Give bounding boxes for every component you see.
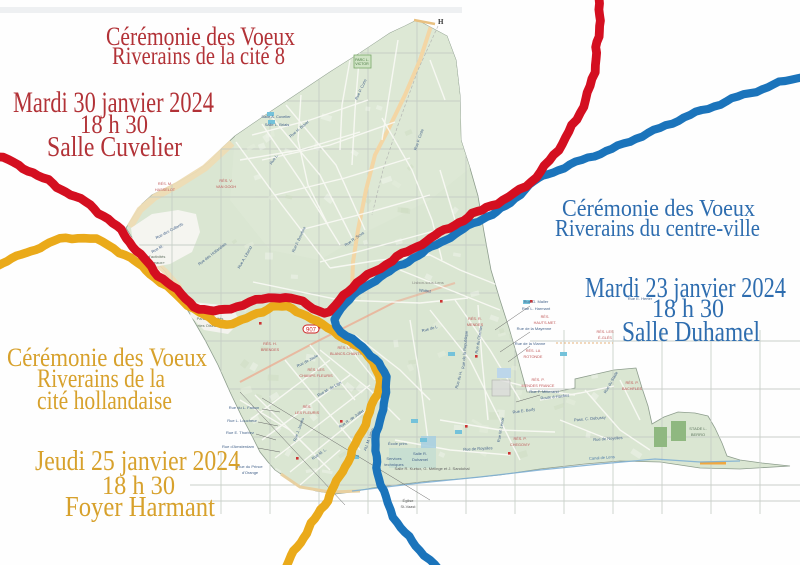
- svg-text:MENDES: MENDES: [467, 323, 484, 327]
- svg-text:MENDES FRANCE: MENDES FRANCE: [522, 384, 555, 388]
- svg-text:HASSELOT: HASSELOT: [155, 188, 176, 192]
- svg-text:d'Orange: d'Orange: [242, 470, 259, 475]
- svg-text:RÉS. P.: RÉS. P.: [513, 436, 526, 441]
- svg-text:Foyer Harmant: Foyer Harmant: [65, 492, 215, 523]
- svg-text:Rue L. Harmant: Rue L. Harmant: [522, 306, 551, 311]
- svg-text:Salle R. Kurtux, G. Mélinge et: Salle R. Kurtux, G. Mélinge et J. Sandoh…: [395, 466, 470, 471]
- svg-text:Salle A. Cuvelier: Salle A. Cuvelier: [261, 114, 291, 119]
- svg-text:RÉS. LES: RÉS. LES: [307, 367, 325, 372]
- svg-text:Salle Cuvelier: Salle Cuvelier: [47, 132, 183, 163]
- svg-text:Salle Duhamel: Salle Duhamel: [622, 317, 760, 348]
- svg-text:VAN GOGH: VAN GOGH: [216, 185, 236, 189]
- svg-text:Rue du L. Falson: Rue du L. Falson: [229, 405, 259, 410]
- svg-text:Rue G. Maller: Rue G. Maller: [524, 299, 549, 304]
- svg-text:Rue E. Thorbez: Rue E. Thorbez: [226, 430, 254, 435]
- svg-text:RÉS. M.: RÉS. M.: [158, 181, 172, 186]
- svg-text:BERRO: BERRO: [691, 432, 705, 437]
- svg-text:RÉS. LA: RÉS. LA: [526, 348, 541, 353]
- svg-text:Rue de la Mayenne: Rue de la Mayenne: [517, 326, 552, 331]
- svg-text:RÉS. H.: RÉS. H.: [263, 341, 277, 346]
- svg-text:cité hollandaise: cité hollandaise: [37, 386, 172, 415]
- svg-text:BRENDES: BRENDES: [261, 348, 280, 352]
- svg-text:Salle R.: Salle R.: [413, 451, 427, 456]
- svg-text:Lisbon-sous-Lens: Lisbon-sous-Lens: [412, 280, 444, 285]
- svg-text:CHAMPS FLEURIS: CHAMPS FLEURIS: [299, 374, 333, 378]
- svg-text:Rue F. Mitterand: Rue F. Mitterand: [529, 389, 558, 394]
- svg-text:ROTONDE: ROTONDE: [524, 355, 543, 359]
- svg-text:Wattez: Wattez: [419, 287, 432, 293]
- svg-text:Rue de la Vianne: Rue de la Vianne: [515, 341, 546, 346]
- svg-text:Riverains de la cité 8: Riverains de la cité 8: [112, 43, 285, 70]
- svg-text:É-GLÉS: É-GLÉS: [598, 335, 612, 340]
- svg-text:RÉS. P.: RÉS. P.: [625, 380, 638, 385]
- svg-text:907: 907: [306, 328, 317, 334]
- svg-text:École prim.: École prim.: [388, 441, 408, 446]
- svg-text:BACHFLES: BACHFLES: [622, 387, 643, 391]
- svg-text:LES FLEURIS: LES FLEURIS: [295, 411, 320, 415]
- svg-text:Services: Services: [386, 456, 401, 461]
- svg-text:Rue L. Loucheur: Rue L. Loucheur: [227, 418, 257, 423]
- svg-text:H: H: [438, 18, 444, 26]
- svg-text:RÉS. R.: RÉS. R.: [468, 316, 482, 321]
- svg-text:RÉS. P.: RÉS. P.: [531, 377, 544, 382]
- svg-text:HAUTS-MET.: HAUTS-MET.: [534, 321, 557, 325]
- svg-text:Rue du Prince: Rue du Prince: [237, 464, 263, 469]
- svg-text:VICTOR: VICTOR: [355, 62, 369, 66]
- svg-text:techniques: techniques: [384, 462, 403, 467]
- svg-text:Église: Église: [403, 498, 415, 503]
- svg-text:STADE L.: STADE L.: [689, 426, 707, 431]
- svg-text:CHEGOVIY: CHEGOVIY: [510, 443, 531, 447]
- svg-text:Riverains du centre-ville: Riverains du centre-ville: [555, 216, 760, 242]
- svg-text:RÉS. LES: RÉS. LES: [596, 329, 614, 334]
- svg-text:Duhamel: Duhamel: [412, 457, 428, 462]
- svg-text:RÉS.: RÉS.: [303, 404, 312, 409]
- svg-text:St-Vaast: St-Vaast: [400, 504, 416, 509]
- svg-text:RÉS. V.: RÉS. V.: [219, 178, 232, 183]
- svg-text:RÉS.: RÉS.: [541, 314, 550, 319]
- svg-text:BLANCS-CHANTS: BLANCS-CHANTS: [330, 352, 363, 356]
- svg-text:Salle L. Briais: Salle L. Briais: [265, 122, 289, 127]
